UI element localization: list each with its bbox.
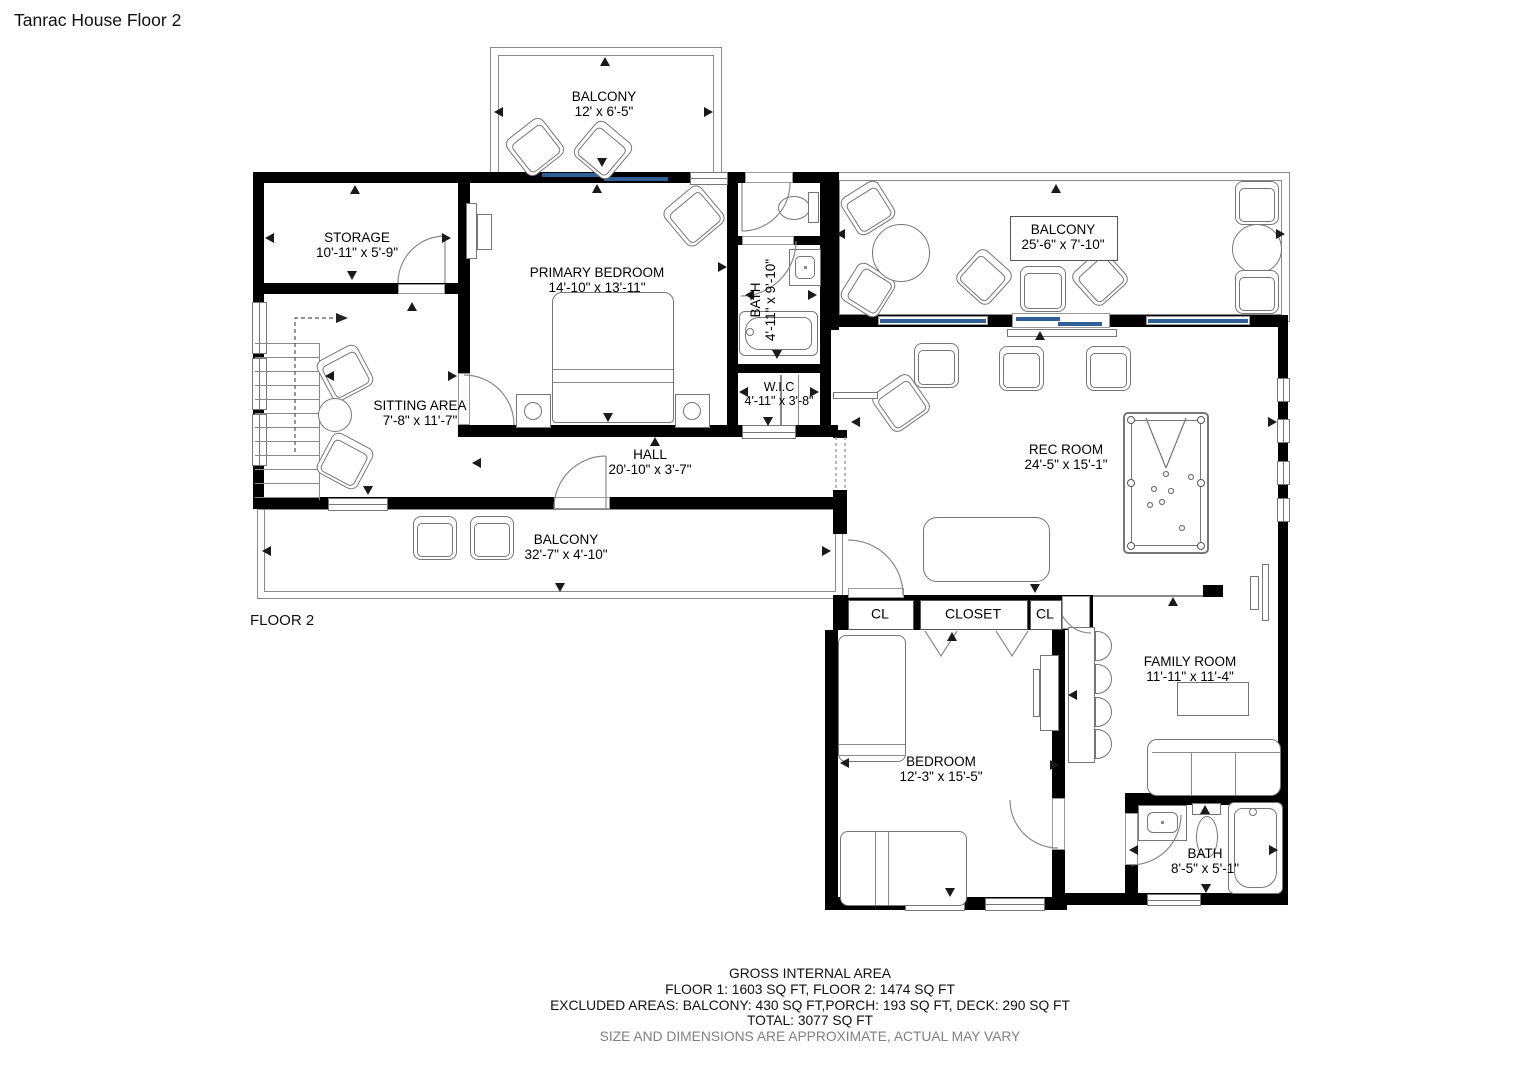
pool-pocket (1197, 479, 1205, 487)
sink-drain (1161, 821, 1164, 824)
bar-stool (1095, 664, 1112, 694)
sink-drain (804, 266, 807, 269)
window (690, 172, 728, 185)
room-name: BATH (748, 259, 763, 341)
sliding-door-window (604, 177, 668, 181)
window (328, 498, 388, 511)
pool-table-felt (1131, 420, 1201, 546)
wall (820, 172, 839, 330)
bed (838, 635, 906, 762)
room-dims: 24'-5" x 15'-1" (1024, 457, 1107, 472)
room-label-primary-bedroom: PRIMARY BEDROOM 14'-10" x 13'-11" (530, 265, 665, 295)
armchair (914, 343, 959, 388)
room-dims: 11'-11" x 11'-4" (1144, 669, 1237, 684)
total-area-line: TOTAL: 3077 SQ FT (350, 1013, 1270, 1029)
room-name: STORAGE (316, 230, 398, 245)
pool-pocket (1127, 542, 1135, 550)
lamp (683, 402, 701, 420)
room-name: FAMILY ROOM (1144, 654, 1237, 669)
floor-areas-line: FLOOR 1: 1603 SQ FT, FLOOR 2: 1474 SQ FT (350, 982, 1270, 998)
pool-pocket (1127, 416, 1135, 424)
bed-fold-line (839, 744, 905, 745)
open-passage-lines (836, 437, 845, 490)
sofa-cushion-line (1235, 752, 1236, 795)
stairs-direction-arrowhead (336, 313, 348, 323)
bar-stool (1095, 631, 1112, 661)
tv (466, 203, 477, 259)
room-dims: 25'-6" x 7'-10" (1021, 237, 1104, 252)
bed-fold-line (553, 369, 673, 370)
round-table (318, 398, 352, 432)
room-dims: 12' x 6'-5" (572, 104, 637, 119)
excluded-areas-line: EXCLUDED AREAS: BALCONY: 430 SQ FT,PORCH… (350, 998, 1270, 1014)
closet-label-left: CL (871, 607, 889, 622)
gross-internal-area-line: GROSS INTERNAL AREA (350, 966, 1270, 982)
window (985, 898, 1045, 911)
door-gap (745, 172, 793, 183)
room-label-balcony-bottom: BALCONY 32'-7" x 4'-10" (524, 532, 607, 562)
wall (833, 430, 847, 438)
sofa (1147, 739, 1281, 796)
room-dims: 4'-11" x 3'-8" (744, 394, 813, 408)
room-name: BATH (1171, 846, 1239, 861)
wall-shelf (833, 392, 878, 399)
closet-slider-door (742, 425, 796, 439)
bar-stool (1095, 697, 1112, 727)
sofa (923, 517, 1050, 582)
toilet-tank (808, 192, 819, 223)
armchair (470, 516, 514, 560)
room-name: HALL (608, 447, 691, 462)
floor-label: FLOOR 2 (250, 612, 314, 629)
door-gap (1125, 813, 1138, 865)
stairs (255, 343, 320, 500)
armchair (314, 342, 376, 404)
armchair (413, 516, 457, 560)
window (1277, 498, 1290, 522)
armchair (999, 346, 1044, 391)
bed (552, 292, 674, 423)
wall-post (1203, 585, 1223, 597)
toilet-bowl (778, 196, 810, 220)
bar-counter (1068, 627, 1095, 763)
armchair (1235, 270, 1279, 314)
tv (1262, 564, 1269, 621)
door-gap (1062, 596, 1090, 629)
window (1277, 378, 1290, 402)
closet-label-center: CLOSET (945, 607, 1001, 622)
armchair (314, 430, 376, 492)
sofa-cushion-line (1191, 752, 1192, 795)
door-gap (554, 497, 610, 509)
window (880, 319, 986, 323)
room-name: BEDROOM (899, 754, 982, 769)
faucet (1249, 808, 1257, 816)
wall (727, 182, 738, 434)
armchair (1235, 181, 1279, 225)
disclaimer-line: SIZE AND DIMENSIONS ARE APPROXIMATE, ACT… (350, 1029, 1270, 1045)
room-dims: 8'-5" x 5'-1" (1171, 861, 1239, 876)
bed-fold-line (839, 755, 905, 756)
sliding-door-window (1058, 322, 1102, 326)
room-label-rec-room: REC ROOM 24'-5" x 15'-1" (1024, 442, 1107, 472)
armchair (1086, 346, 1131, 391)
pool-pocket (1197, 542, 1205, 550)
room-dims: 7'-8" x 11'-7" (373, 413, 466, 428)
room-dims: 4'-11" x 9'-10" (763, 259, 778, 341)
room-label-hall: HALL 20'-10" x 3'-7" (608, 447, 691, 477)
toilet-tank (1192, 803, 1221, 815)
bed-fold-line (888, 832, 889, 905)
window (1277, 419, 1290, 443)
room-dims: 10'-11" x 5'-9" (316, 245, 398, 260)
coffee-table (1177, 682, 1249, 716)
room-name: REC ROOM (1024, 442, 1107, 457)
window (1277, 461, 1290, 485)
armchair (1020, 266, 1066, 312)
page-title: Tanrac House Floor 2 (14, 10, 181, 31)
pool-pocket (1127, 479, 1135, 487)
room-label-bath-upper: BATH 4'-11" x 9'-10" (748, 259, 778, 341)
closet-hanger-marks (925, 631, 1028, 656)
door-gap (398, 284, 445, 294)
sliding-door-window (1016, 317, 1060, 321)
round-table (1232, 224, 1282, 274)
room-name: BALCONY (524, 532, 607, 547)
door-leaf (848, 588, 904, 598)
room-name: W.I.C (744, 380, 813, 394)
room-label-family-room: FAMILY ROOM 11'-11" x 11'-4" (1144, 654, 1237, 684)
room-dims: 12'-3" x 15'-5" (899, 769, 982, 784)
armchair (660, 182, 728, 250)
room-label-balcony-right: BALCONY 25'-6" x 7'-10" (1021, 222, 1104, 252)
room-dims: 14'-10" x 13'-11" (530, 280, 665, 295)
wall (820, 330, 831, 434)
tv-mount (1250, 576, 1259, 610)
bathtub-inner (1234, 808, 1277, 888)
bed (840, 831, 967, 906)
room-label-sitting-area: SITTING AREA 7'-8" x 11'-7" (373, 398, 466, 428)
dresser-front (1033, 669, 1040, 717)
dresser (1040, 655, 1059, 731)
window (1148, 319, 1248, 323)
wall (727, 364, 821, 373)
room-name: BALCONY (572, 89, 637, 104)
pool-pocket (1197, 416, 1205, 424)
door-gap (1052, 798, 1065, 850)
window (1147, 894, 1201, 906)
room-label-bath-lower: BATH 8'-5" x 5'-1" (1171, 846, 1239, 876)
bed-fold-line (553, 382, 673, 383)
floor-plan-canvas: Tanrac House Floor 2 (0, 0, 1527, 1080)
door-gap (742, 236, 794, 245)
lamp (524, 402, 542, 420)
round-table (872, 224, 930, 282)
room-dims: 32'-7" x 4'-10" (524, 547, 607, 562)
bed-fold-line (875, 832, 876, 905)
rec-room-open-boundary-line (1093, 595, 1205, 597)
console-table (1007, 329, 1117, 337)
room-name: PRIMARY BEDROOM (530, 265, 665, 280)
wall (833, 490, 847, 534)
room-label-storage: STORAGE 10'-11" x 5'-9" (316, 230, 398, 260)
closet-label-right: CL (1036, 607, 1054, 622)
room-label-wic: W.I.C 4'-11" x 3'-8" (744, 380, 813, 408)
bar-stool (1095, 729, 1112, 759)
room-name: SITTING AREA (373, 398, 466, 413)
room-dims: 20'-10" x 3'-7" (608, 462, 691, 477)
room-name: BALCONY (1021, 222, 1104, 237)
wall (825, 630, 838, 910)
tv-mount (477, 214, 492, 250)
footer-area-summary: GROSS INTERNAL AREA FLOOR 1: 1603 SQ FT,… (350, 966, 1270, 1045)
room-label-balcony-top: BALCONY 12' x 6'-5" (572, 89, 637, 119)
sofa-back-line (1152, 752, 1280, 753)
room-label-bedroom: BEDROOM 12'-3" x 15'-5" (899, 754, 982, 784)
